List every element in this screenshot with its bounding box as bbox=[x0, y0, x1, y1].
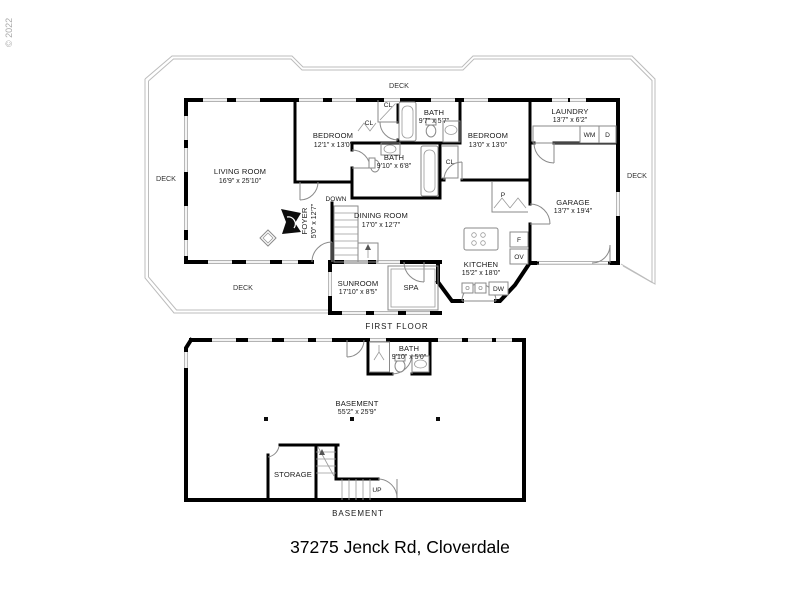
pantry-label: P bbox=[501, 192, 506, 199]
foyer-label-group: FOYER 5'0" x 12'7" bbox=[300, 203, 318, 238]
toilet bbox=[395, 360, 405, 372]
copyright-watermark: © 2022 bbox=[4, 18, 14, 47]
support-post bbox=[436, 417, 440, 421]
fridge-label: F bbox=[517, 237, 521, 244]
storage-label: STORAGE bbox=[274, 470, 312, 479]
storage-door bbox=[268, 446, 279, 457]
basement-walls bbox=[186, 340, 524, 500]
garage-label: GARAGE bbox=[556, 198, 589, 207]
laundry-door bbox=[534, 143, 554, 163]
kitchen-label: KITCHEN bbox=[464, 260, 498, 269]
basement-outline bbox=[186, 340, 524, 500]
sunroom-door bbox=[404, 262, 424, 282]
living-room-dims: 16'9" x 25'10" bbox=[219, 178, 262, 185]
oven-label: OV bbox=[514, 254, 524, 261]
sunroom-dims: 17'10" x 8'5" bbox=[339, 289, 378, 296]
basement-bath-dims: 9'10" x 5'0" bbox=[392, 354, 427, 361]
bedroom1-dims: 12'1" x 13'0" bbox=[314, 142, 353, 149]
garage-deck-door bbox=[592, 245, 610, 263]
laundry-label: LAUNDRY bbox=[551, 107, 588, 116]
bath1-dims: 9'7" x 5'7" bbox=[419, 118, 450, 125]
laundry-dims: 13'7" x 6'2" bbox=[553, 117, 588, 124]
basement-posts bbox=[264, 417, 440, 421]
living-room-label: LIVING ROOM bbox=[214, 167, 266, 176]
basement-stairs bbox=[316, 447, 370, 500]
bath1-label: BATH bbox=[424, 108, 444, 117]
address-title: 37275 Jenck Rd, Cloverdale bbox=[290, 537, 510, 557]
garage-house-door bbox=[530, 204, 550, 224]
pantry-bifold-doors bbox=[494, 198, 526, 208]
basement-entry-door bbox=[347, 340, 364, 357]
sunroom-label: SUNROOM bbox=[338, 279, 379, 288]
basement-caption: BASEMENT bbox=[332, 509, 384, 518]
sink-basin-right bbox=[475, 283, 486, 293]
dining-room-label: DINING ROOM bbox=[354, 211, 408, 220]
sink-basin-left bbox=[462, 283, 473, 293]
front-door bbox=[312, 242, 332, 262]
basement-area-label: BASEMENT bbox=[336, 399, 379, 408]
sink bbox=[445, 126, 457, 135]
dining-room-dims: 17'0" x 12'7" bbox=[362, 222, 401, 229]
deck-top-label: DECK bbox=[389, 81, 409, 90]
closet-a-label: CL bbox=[384, 102, 393, 109]
toilet bbox=[426, 125, 436, 137]
basement-bath-label: BATH bbox=[399, 344, 419, 353]
floor-plan-page: DECK DECK DECK DECK LIVING ROOM 16'9" x … bbox=[0, 0, 800, 600]
first-floor-caption: FIRST FLOOR bbox=[365, 322, 428, 331]
bedroom1-label: BEDROOM bbox=[313, 131, 353, 140]
dishwasher-label: DW bbox=[493, 286, 505, 293]
laundry-fixtures bbox=[533, 126, 616, 143]
kitchen-island bbox=[464, 228, 498, 250]
bath1-door bbox=[380, 122, 398, 140]
closet-b-label: CL bbox=[365, 120, 374, 127]
bathtub bbox=[421, 146, 438, 196]
bath2-door bbox=[352, 150, 370, 168]
basement-stair-walls bbox=[316, 445, 378, 500]
stairs-up-label: UP bbox=[372, 487, 382, 494]
stairs-down-label: DOWN bbox=[326, 196, 347, 203]
deck-bottom-label: DECK bbox=[233, 283, 253, 292]
bedroom2-dims: 13'0" x 13'0" bbox=[469, 142, 508, 149]
bath2-label: BATH bbox=[384, 153, 404, 162]
decor-diamond bbox=[260, 230, 276, 246]
floor-plan-drawing: DECK DECK DECK DECK LIVING ROOM 16'9" x … bbox=[0, 0, 800, 600]
basement-area-dims: 55'2" x 25'9" bbox=[338, 409, 377, 416]
foyer-label: FOYER bbox=[300, 207, 309, 234]
kitchen-dims: 15'2" x 18'0" bbox=[462, 270, 501, 277]
stair-arrow bbox=[365, 244, 371, 250]
sink bbox=[384, 145, 396, 153]
foyer-dims: 5'0" x 12'7" bbox=[311, 203, 318, 238]
garage-dims: 13'7" x 19'4" bbox=[554, 208, 593, 215]
washer-label: WM bbox=[584, 132, 596, 139]
closet-c-label: CL bbox=[446, 159, 455, 166]
bedroom2-label: BEDROOM bbox=[468, 131, 508, 140]
sink bbox=[415, 360, 427, 368]
dryer-label: D bbox=[605, 132, 610, 139]
support-post bbox=[350, 417, 354, 421]
bedroom1-door bbox=[300, 182, 318, 200]
shower-stall bbox=[370, 342, 390, 372]
bath2-dims: 9'10" x 6'8" bbox=[377, 163, 412, 170]
fireplace bbox=[281, 209, 301, 234]
support-post bbox=[264, 417, 268, 421]
spa-label: SPA bbox=[403, 283, 419, 292]
deck-right-label: DECK bbox=[627, 171, 647, 180]
first-floor-interior-walls bbox=[295, 100, 618, 263]
bathtub bbox=[399, 102, 416, 141]
deck-left-label: DECK bbox=[156, 174, 176, 183]
